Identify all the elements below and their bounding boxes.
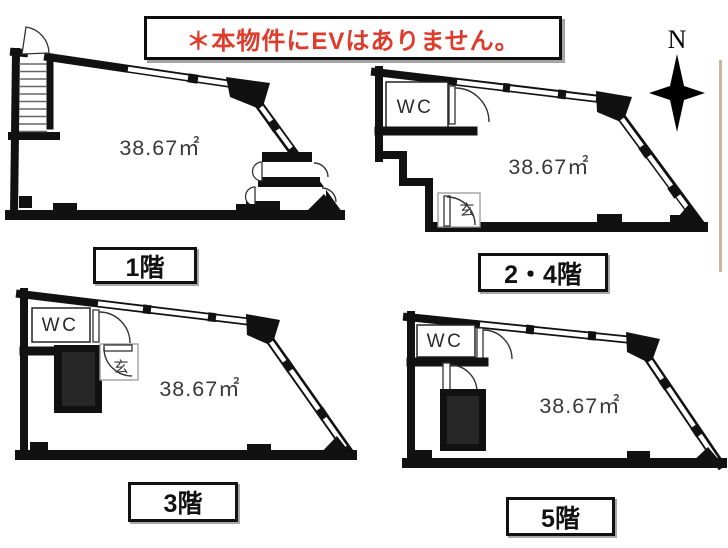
3f-wc-door-arc	[99, 312, 130, 343]
24f-diagonal-window	[622, 119, 697, 221]
3f-diagonal-mullion-1	[285, 361, 291, 370]
24f-wc-door-arc	[455, 88, 489, 122]
5f-diagonal-window	[650, 361, 716, 459]
floor-label-1f: 1階	[93, 247, 197, 284]
3f-top-window	[98, 304, 247, 322]
3f-area-label: 38.67㎡	[159, 376, 240, 401]
compass-north-label: N	[668, 25, 687, 54]
5f-pillar-tab-2	[627, 451, 650, 463]
24f-area-label: 38.67㎡	[508, 154, 589, 179]
1f-passage-wall-a	[262, 152, 312, 162]
1f-passage-2	[250, 187, 326, 201]
24f-wc-label: WC	[397, 97, 434, 118]
5f-pillar-tab-1	[415, 450, 432, 463]
page-edge-line	[719, 60, 722, 272]
24f-diagonal-mullion-1	[642, 146, 649, 156]
24f-pillar-tab-2	[670, 215, 692, 227]
24f-pillar-tab-1	[597, 214, 622, 226]
compass-star-icon	[649, 54, 705, 132]
5f-top-mullion-2	[588, 335, 596, 336]
5f-stair-shaft-fill	[447, 396, 479, 444]
24f-top-mullion-2	[558, 94, 566, 95]
compass: N	[649, 25, 705, 132]
1f-passage-1	[256, 162, 322, 177]
3f-entrance-label: 玄	[113, 359, 128, 376]
5f-shaft-door-leaf	[443, 363, 450, 391]
5f-wc-door-arc	[483, 330, 512, 359]
notice-text: ＊本物件にEVはありません。	[186, 21, 519, 56]
floor-label-3f-text: 3階	[164, 484, 203, 520]
1f-pillar-tab-corner	[19, 196, 32, 208]
3f-pillar-tab-1	[30, 442, 48, 455]
floor-label-5f-text: 5階	[541, 499, 580, 535]
24f-entrance-label: 玄	[459, 202, 474, 219]
24f-top-mullion-1	[503, 87, 510, 88]
3f-pillar-tab-2	[247, 444, 271, 455]
3f-top-mullion-1	[143, 309, 151, 310]
plan-5f: WC 38.67㎡	[407, 315, 724, 466]
1f-pillar-tab-right	[236, 204, 263, 215]
24f-zigzag-wall	[379, 155, 429, 228]
3f-entrance-door-leaf	[104, 345, 132, 351]
3f-diagonal-window	[271, 342, 345, 447]
1f-area-label: 38.67㎡	[119, 135, 200, 160]
plan-3f: WC 玄 38.67㎡	[20, 292, 354, 458]
1f-top-mullion	[188, 78, 198, 80]
1f-door-arc-1	[253, 162, 263, 181]
5f-area-label: 38.67㎡	[539, 393, 620, 418]
5f-diagonal-mullion-2	[694, 426, 700, 435]
floor-label-1f-text: 1階	[126, 248, 165, 284]
5f-shaft-door-arc	[450, 365, 477, 392]
notice-banner: ＊本物件にEVはありません。	[144, 16, 562, 60]
5f-wc-label: WC	[427, 331, 464, 352]
1f-stair-door-arc	[22, 27, 49, 54]
3f-wc-label: WC	[42, 315, 79, 336]
3f-wc-door-leaf	[93, 310, 99, 342]
3f-top-mullion-2	[208, 317, 216, 318]
24f-diagonal-mullion-2	[671, 186, 678, 196]
1f-pillar-tab-left	[53, 203, 77, 214]
floor-label-2-4f: 2・4階	[478, 253, 608, 292]
floor-label-5f: 5階	[506, 497, 615, 536]
floor-label-2-4f-text: 2・4階	[504, 255, 582, 291]
1f-passage-wall-b	[258, 177, 320, 187]
5f-wc-door-leaf	[477, 328, 483, 359]
1f-diagonal-mullion	[271, 121, 277, 130]
24f-wc-door-leaf	[449, 86, 455, 124]
1f-stair-treads	[19, 64, 47, 132]
5f-top-mullion-1	[526, 329, 534, 330]
3f-diagonal-mullion-2	[319, 409, 325, 418]
3f-stair-shaft-fill	[62, 352, 95, 406]
floorplan-sheet: 38.67㎡ WC	[0, 0, 728, 548]
1f-top-window	[128, 69, 234, 85]
floor-label-3f: 3階	[128, 482, 238, 522]
5f-diagonal-mullion-1	[662, 379, 668, 388]
24f-entrance-door-leaf	[444, 196, 450, 226]
